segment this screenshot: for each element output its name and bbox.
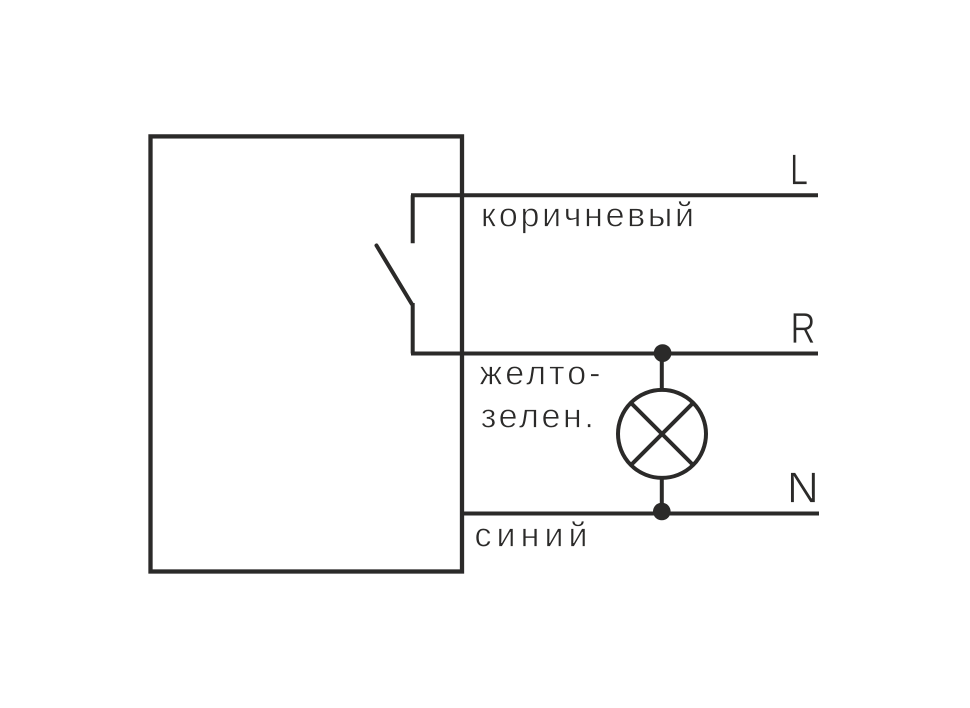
svg-text:синий: синий <box>475 517 588 555</box>
svg-text:желто-: желто- <box>480 355 601 393</box>
svg-text:R: R <box>791 304 816 353</box>
svg-text:зелен.: зелен. <box>481 397 594 435</box>
svg-text:коричневый: коричневый <box>481 196 694 234</box>
svg-text:N: N <box>787 464 819 513</box>
svg-text:L: L <box>790 146 808 195</box>
